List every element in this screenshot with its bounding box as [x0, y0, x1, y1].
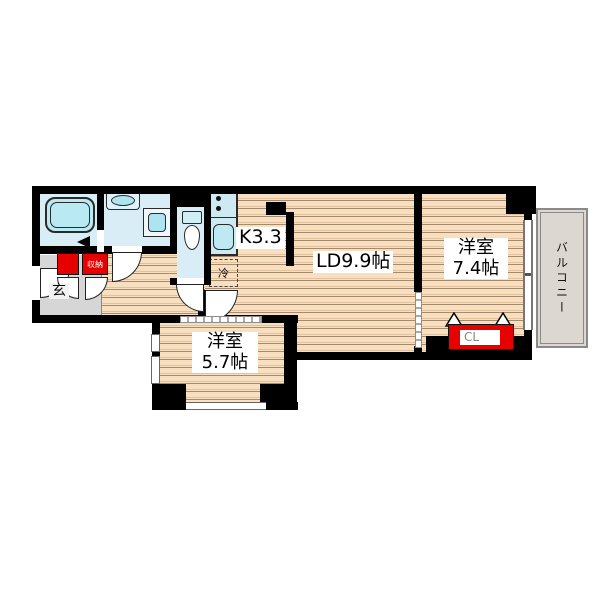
- bathtub: [45, 197, 95, 233]
- wall-kitchen-stub-v: [286, 212, 294, 266]
- refrigerator-label: 冷: [218, 265, 229, 281]
- closet-label: CL: [460, 330, 500, 345]
- bathtub-inner-line: [50, 202, 90, 228]
- bedroom-bottom-sliding-door: [180, 316, 262, 323]
- kitchen-counter: [208, 190, 238, 256]
- bedroom-right-label: 洋室 7.4帖: [444, 238, 508, 279]
- wall-kitchen-stub-h: [266, 202, 286, 215]
- wall-top: [32, 186, 532, 194]
- bath-folding-door-icon: [77, 236, 90, 248]
- bay-block-left: [158, 384, 186, 406]
- burner-dot: [216, 196, 221, 201]
- washbasin-bowl: [111, 195, 135, 206]
- toilet-top-block: [170, 186, 211, 207]
- bedroom-right-size: 7.4帖: [453, 259, 500, 280]
- storage-box: [57, 253, 79, 275]
- wall-right-lower: [524, 326, 532, 360]
- wall-toilet-right: [204, 207, 211, 285]
- window-bedroom-left-2: [151, 356, 160, 384]
- wall-ld-bedroom: [414, 194, 422, 292]
- balcony-window: [523, 220, 533, 330]
- storage-box-labeled: 収納: [82, 253, 108, 275]
- ld-bedroom-sliding-door: [415, 292, 422, 348]
- bedroom-bottom-size: 5.7帖: [202, 353, 249, 374]
- living-dining-label: LD9.9帖: [313, 251, 393, 273]
- balcony-inner: バルコニー: [540, 212, 584, 344]
- wall-bath-right: [97, 193, 104, 232]
- bedroom-bottom-name: 洋室: [207, 332, 243, 353]
- wall-entrance-bottom: [32, 315, 160, 323]
- wall-left-upper: [32, 186, 40, 266]
- kitchen-sink: [213, 224, 234, 250]
- washing-machine: [143, 208, 171, 237]
- bath-door-gap: [97, 230, 104, 252]
- floor-plan: 冷 収納: [0, 0, 600, 600]
- balcony-label: バルコニー: [554, 241, 571, 316]
- corner-column: [506, 186, 536, 214]
- washing-machine-drum: [148, 213, 166, 232]
- burner-dot: [216, 206, 221, 211]
- toilet-tank: [182, 211, 202, 224]
- window-bedroom-left-1: [151, 334, 160, 352]
- closet-box: CL: [448, 324, 514, 350]
- bay-window: [186, 402, 266, 410]
- balcony: バルコニー: [536, 208, 588, 348]
- kitchen-label: K3.3: [236, 227, 285, 249]
- entrance-label: 玄: [49, 283, 69, 299]
- bedroom-bottom-label: 洋室 5.7帖: [192, 332, 258, 373]
- bedroom-right-name: 洋室: [458, 238, 494, 259]
- balcony-window-tick: [525, 273, 531, 276]
- closet-label-chip: CL: [460, 330, 500, 345]
- refrigerator-space: 冷: [209, 259, 238, 287]
- storage-label: 収納: [87, 259, 103, 270]
- front-door-gap: [32, 266, 40, 300]
- stove-section: [210, 192, 236, 218]
